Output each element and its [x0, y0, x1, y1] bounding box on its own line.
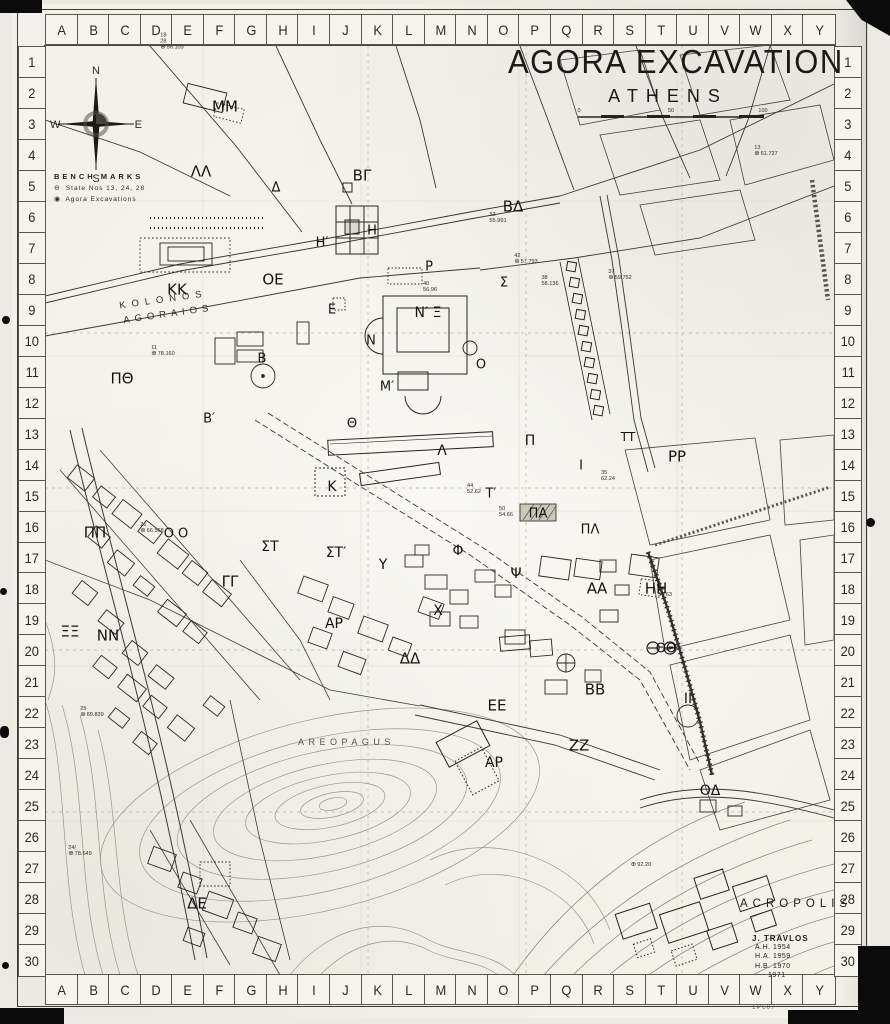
section-label: ΞΞ — [61, 625, 80, 640]
grid-row-label: 5 — [18, 170, 46, 203]
grid-col-label: J — [329, 14, 363, 45]
section-label: Υ — [379, 558, 388, 572]
bench-mark: 3056.63 — [658, 586, 672, 598]
section-label: Κ — [327, 480, 336, 494]
grid-row-label: 4 — [18, 139, 46, 172]
title-block: AGORA EXCAVATION ATHENS — [508, 44, 828, 107]
agora-benchmark-icon: ◉ — [54, 195, 63, 203]
bench-mark: 4056.96 — [423, 281, 437, 293]
grid-col-label: R — [582, 14, 616, 45]
photo-artifact — [2, 962, 9, 969]
grid-col-label: A — [45, 974, 79, 1005]
bench-marks-legend: BENCH MARKS ⊖ State Nos 13, 24, 28 ◉ Ago… — [54, 172, 145, 203]
photo-artifact — [0, 588, 7, 595]
grid-col-label: Y — [802, 14, 836, 45]
legend-title: BENCH MARKS — [54, 172, 145, 181]
grid-row-label: 17 — [834, 542, 862, 575]
grid-row-label: 13 — [834, 418, 862, 451]
credit-line: A.H. 1954 — [755, 943, 809, 952]
grid-row-label: 9 — [18, 294, 46, 327]
grid-col-label: X — [771, 14, 805, 45]
grid-row-label: 21 — [18, 665, 46, 698]
grid-col-label: B — [77, 974, 111, 1005]
grid-col-label: E — [171, 974, 205, 1005]
legend-item: ⊖ State Nos 13, 24, 28 — [54, 184, 145, 192]
grid-col-label: C — [108, 974, 142, 1005]
grid-col-label: D — [140, 974, 174, 1005]
section-label: ΠΠ — [84, 526, 107, 541]
section-label: Ν — [366, 335, 376, 348]
section-label: ΝΝ — [97, 629, 119, 644]
scale-tick: 0 — [577, 108, 580, 114]
grid-row-label: 15 — [834, 480, 862, 513]
photo-artifact — [858, 946, 890, 1024]
grid-col-label: P — [518, 974, 552, 1005]
grid-row-label: 10 — [18, 325, 46, 358]
section-label: ΣΤ′ — [326, 546, 347, 560]
grid-col-label: W — [739, 14, 773, 45]
bench-mark: 13⊕61.727 — [754, 145, 778, 157]
grid-row-label: 29 — [18, 913, 46, 946]
state-benchmark-icon: ⊖ — [54, 184, 63, 192]
bench-mark: 25⊛69.839 — [80, 706, 104, 718]
bench-mark: 4452.62 — [467, 483, 481, 495]
scale-bar: 0 50 100 — [578, 110, 764, 120]
photo-artifact — [0, 726, 9, 738]
scale-tick: 50 — [668, 108, 674, 114]
grid-col-label: F — [203, 974, 237, 1005]
bench-mark: 24/⊕78.649 — [68, 845, 92, 857]
credit-line: H.B. 1970 — [755, 962, 809, 971]
grid-row-label: 16 — [18, 511, 46, 544]
legend-item-label: State Nos 13, 24, 28 — [66, 185, 145, 192]
grid-row-label: 9 — [834, 294, 862, 327]
grid-col-label: T — [645, 974, 679, 1005]
grid-row-label: 12 — [834, 387, 862, 420]
bench-mark: ⊕92.20 — [631, 862, 651, 868]
grid-col-label: R — [582, 974, 616, 1005]
grid-col-label: J — [329, 974, 363, 1005]
grid-row-label: 20 — [834, 634, 862, 667]
grid-col-label: U — [676, 14, 710, 45]
grid-row-label: 14 — [18, 449, 46, 482]
grid-row-label: 28 — [18, 882, 46, 915]
photo-artifact — [2, 316, 10, 324]
grid-col-label: S — [613, 974, 647, 1005]
section-label: Β′ — [203, 413, 215, 426]
credit-line: 1971 — [768, 971, 809, 980]
grid-row-label: 24 — [834, 758, 862, 791]
grid-row-label: 8 — [18, 263, 46, 296]
section-label: Ο — [476, 359, 486, 372]
section-label: Ι — [579, 460, 583, 473]
section-label: ΙΙ — [684, 692, 692, 706]
grid-row-label: 13 — [18, 418, 46, 451]
section-label: ΟΔ — [700, 784, 721, 798]
benchmark-icon: ⊛ — [80, 711, 85, 718]
section-label: ΜΜ — [212, 100, 238, 115]
map-title: AGORA EXCAVATION — [508, 43, 828, 82]
section-label: ΕΕ — [488, 699, 507, 714]
grid-row-label: 19 — [834, 603, 862, 636]
section-label: Μ′ — [380, 381, 394, 394]
bench-mark: 1828⊕56.103 — [160, 33, 184, 52]
section-label: Χ — [433, 604, 443, 618]
grid-row-label: 11 — [834, 356, 862, 389]
grid-col-label: P — [518, 14, 552, 45]
grid-col-label: G — [234, 14, 268, 45]
section-label: ΡΡ — [668, 450, 686, 465]
section-label: Ρ — [425, 261, 433, 274]
grid-row-label: 14 — [834, 449, 862, 482]
grid-col-label: F — [203, 14, 237, 45]
grid-row-label: 4 — [834, 139, 862, 172]
grid-row-label: 16 — [834, 511, 862, 544]
grid-row-label: 2 — [18, 77, 46, 110]
grid-row-label: 24 — [18, 758, 46, 791]
grid-row-label: 22 — [834, 696, 862, 729]
legend-item: ◉ Agora Excavations — [54, 195, 145, 203]
section-label: Π — [525, 434, 536, 448]
grid-row-label: 5 — [834, 170, 862, 203]
section-label: Η′ — [316, 237, 329, 250]
section-label: Ψ — [510, 567, 521, 581]
grid-row-label: 26 — [18, 820, 46, 853]
photo-artifact — [0, 0, 42, 13]
section-label: Η — [367, 225, 377, 238]
grid-row-label: 23 — [834, 727, 862, 760]
place-name-areopagus: AREOPAGUS — [298, 737, 395, 747]
grid-row-label: 19 — [18, 603, 46, 636]
grid-col-label: M — [424, 14, 458, 45]
grid-col-label: U — [676, 974, 710, 1005]
credits-block: J. TRAVLOS A.H. 1954 H.A. 1959 H.B. 1970… — [752, 934, 809, 981]
section-label: Λ — [437, 444, 447, 458]
legend-item-label: Agora Excavations — [65, 196, 136, 203]
compass-west-label: W — [50, 119, 61, 131]
sheet-number: 1P607 — [752, 1004, 776, 1011]
section-label: ΟΕ — [262, 273, 283, 288]
section-label: Ο Ο — [164, 528, 189, 541]
section-label: Θ — [347, 418, 357, 431]
photo-artifact — [866, 518, 875, 527]
grid-col-label: I — [297, 974, 331, 1005]
grid-row-label: 22 — [18, 696, 46, 729]
section-label: ΠΛ — [581, 524, 600, 537]
grid-row-label: 6 — [834, 201, 862, 234]
section-label: ΠΘ — [110, 372, 133, 387]
benchmark-icon: ⊕ — [160, 44, 165, 51]
bench-mark: 5054.66 — [499, 506, 513, 518]
grid-col-label: K — [361, 974, 395, 1005]
grid-row-label: 12 — [18, 387, 46, 420]
benchmark-icon: ⊕ — [68, 850, 73, 857]
bench-mark: 37⊛59.752 — [608, 269, 632, 281]
grid-row-label: 20 — [18, 634, 46, 667]
bench-mark: 3858.136 — [541, 275, 558, 287]
grid-row-label: 18 — [834, 572, 862, 605]
grid-row-label: 1 — [18, 46, 46, 79]
scale-bar-segment — [693, 115, 716, 118]
compass-rose: N S W E — [48, 64, 144, 184]
grid-row-label: 2 — [834, 77, 862, 110]
grid-col-label: V — [708, 974, 742, 1005]
grid-col-label: Q — [550, 14, 584, 45]
section-label: ΚΚ — [167, 283, 187, 298]
benchmark-icon: ⊕ — [151, 350, 156, 357]
grid-col-label: T — [645, 14, 679, 45]
grid-col-label: B — [77, 14, 111, 45]
grid-col-label: L — [392, 14, 426, 45]
grid-row-label: 29 — [834, 913, 862, 946]
benchmark-icon: ⊕ — [631, 861, 636, 868]
grid-row-label: 21 — [834, 665, 862, 698]
bench-mark: 5255.991 — [489, 212, 506, 224]
credit-line: H.A. 1959 — [755, 952, 809, 961]
section-label: ΑΡ — [485, 756, 503, 770]
grid-col-label: Q — [550, 974, 584, 1005]
grid-row-label: 8 — [834, 263, 862, 296]
grid-row-label: 26 — [834, 820, 862, 853]
grid-row-label: 7 — [834, 232, 862, 265]
bench-mark: 3562.24 — [601, 470, 615, 482]
grid-col-label: N — [455, 974, 489, 1005]
grid-row-label: 10 — [834, 325, 862, 358]
grid-row-label: 17 — [18, 542, 46, 575]
scale-tick: 100 — [758, 108, 767, 114]
bench-mark: 42⊛57.793 — [514, 253, 538, 265]
grid-row-label: 18 — [18, 572, 46, 605]
section-label: ΒΓ — [353, 169, 372, 184]
grid-col-label: C — [108, 14, 142, 45]
section-label: ΒΒ — [585, 683, 606, 698]
section-label: ΔΕ — [187, 897, 207, 912]
section-label: ΘΘ — [656, 643, 676, 656]
grid-row-label: 25 — [834, 789, 862, 822]
grid-col-label: A — [45, 14, 79, 45]
compass-north-label: N — [92, 65, 100, 77]
scale-bar-segment — [647, 115, 670, 118]
grid-row-label: 3 — [18, 108, 46, 141]
grid-col-label: G — [234, 974, 268, 1005]
grid-row-label: 3 — [834, 108, 862, 141]
section-label: Δ — [272, 182, 281, 195]
cartographer-name: J. TRAVLOS — [752, 934, 809, 943]
section-label: ΓΓ — [222, 575, 239, 590]
grid-col-label: H — [266, 14, 300, 45]
grid-row-label: 6 — [18, 201, 46, 234]
section-label: ΛΛ — [191, 165, 212, 180]
section-label: ΣΤ — [261, 540, 278, 554]
benchmark-icon: ⊕ — [754, 150, 759, 157]
bench-mark: 11⊕78.160 — [151, 345, 175, 357]
grid-row-label: 25 — [18, 789, 46, 822]
section-label: Ε — [328, 304, 336, 317]
place-name-acropolis: ACROPOLIS — [740, 898, 852, 910]
grid-col-label: I — [297, 14, 331, 45]
section-label: Τ′ — [486, 488, 497, 501]
grid-col-label: L — [392, 974, 426, 1005]
benchmark-icon: ⊛ — [514, 258, 519, 265]
grid-col-label: O — [487, 974, 521, 1005]
grid-row-label: 7 — [18, 232, 46, 265]
benchmark-icon: ⊛ — [140, 527, 145, 534]
section-label: ΔΔ — [400, 652, 421, 667]
section-label: ΑΡ — [325, 617, 343, 631]
section-label: Ν′ Ξ — [415, 306, 442, 320]
section-label: ΠΑ — [529, 508, 548, 521]
grid-col-label: S — [613, 14, 647, 45]
section-label: Σ — [500, 277, 508, 290]
grid-row-label: 27 — [18, 851, 46, 884]
grid-row-label: 23 — [18, 727, 46, 760]
grid-row-label: 30 — [18, 944, 46, 977]
grid-row-label: 11 — [18, 356, 46, 389]
scale-bar-segment — [601, 115, 624, 118]
grid-col-label: K — [361, 14, 395, 45]
map-subtitle: ATHENS — [508, 86, 828, 107]
grid-col-label: O — [487, 14, 521, 45]
grid-row-label: 27 — [834, 851, 862, 884]
section-label: Β — [258, 353, 267, 366]
scale-bar-segment — [739, 115, 764, 118]
grid-col-label: N — [455, 14, 489, 45]
section-label: ΑΑ — [587, 582, 608, 597]
section-label: ΖΖ — [569, 739, 590, 754]
section-label: ΤΤ — [621, 431, 636, 443]
compass-east-label: E — [135, 119, 142, 131]
section-label: Φ — [452, 544, 463, 558]
photo-artifact — [0, 1008, 64, 1024]
grid-col-label: M — [424, 974, 458, 1005]
grid-col-label: H — [266, 974, 300, 1005]
grid-row-label: 15 — [18, 480, 46, 513]
benchmark-icon: ⊛ — [608, 274, 613, 281]
grid-col-label: V — [708, 14, 742, 45]
bench-mark: 21⊛66.568 — [140, 522, 164, 534]
